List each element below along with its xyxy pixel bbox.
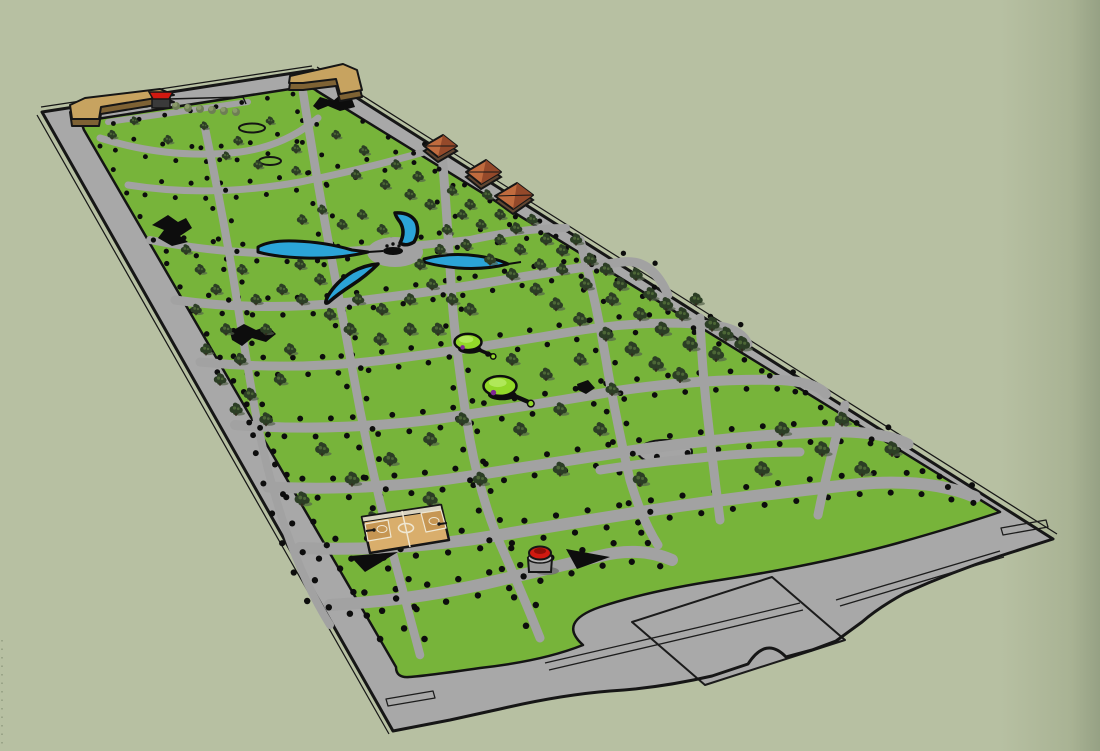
hoop-right xyxy=(440,523,447,524)
hedge-bush xyxy=(196,105,204,113)
hedge-bush xyxy=(220,107,228,115)
hedge-bush xyxy=(232,108,240,116)
background-right-shade xyxy=(1000,0,1100,751)
fountain-spray xyxy=(397,244,400,247)
pond-edge-line xyxy=(368,251,383,252)
hoop-left-ring xyxy=(372,528,375,531)
oval-flowerbed[interactable] xyxy=(259,157,281,165)
hoop-left xyxy=(366,530,373,531)
hedge-bush xyxy=(208,106,216,114)
central-fountain[interactable] xyxy=(383,247,403,255)
hedge-bush xyxy=(172,102,180,110)
fountain-spray xyxy=(391,242,394,245)
court-key-right xyxy=(421,510,446,532)
hedge-bush xyxy=(184,104,192,112)
fountain-spray xyxy=(385,244,388,247)
oval-flowerbed[interactable] xyxy=(239,124,265,133)
hoop-right-ring xyxy=(437,522,440,525)
3d-model-viewport[interactable] xyxy=(0,0,1100,751)
park-scene[interactable] xyxy=(0,0,1100,751)
kiosk-hut[interactable] xyxy=(149,92,173,108)
